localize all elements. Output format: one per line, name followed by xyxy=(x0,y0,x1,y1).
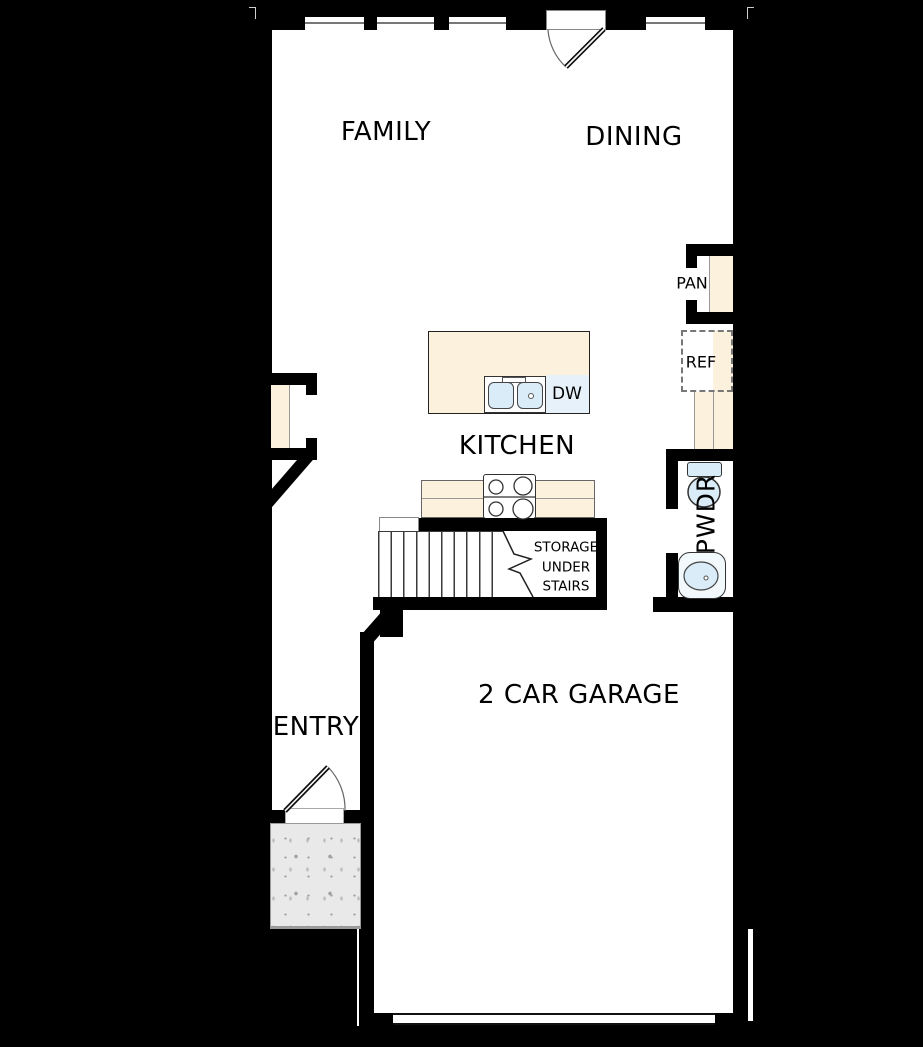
powder-room-label: PWDR xyxy=(692,474,721,554)
stair-break-line xyxy=(503,531,533,597)
family-room-label: FAMILY xyxy=(341,117,431,147)
storage-note-line2: UNDER xyxy=(534,558,598,578)
garage-step-diagonal xyxy=(366,606,396,640)
dishwasher-label: DW xyxy=(552,384,582,404)
kitchen-label: KITCHEN xyxy=(459,431,575,461)
floor-plan: FAMILY DINING KITCHEN ENTRY 2 CAR GARAGE… xyxy=(0,0,923,1047)
stove-burner xyxy=(513,499,533,519)
plan-overlay xyxy=(0,0,923,1047)
refrigerator-label: REF xyxy=(686,353,716,372)
powder-sink-basin xyxy=(684,562,718,590)
entry-door-leaf-inner xyxy=(285,767,328,811)
front-door-arc xyxy=(548,30,566,67)
garage-label: 2 CAR GARAGE xyxy=(478,680,680,710)
storage-note-line3: STAIRS xyxy=(534,578,598,598)
stove-burner xyxy=(514,477,532,495)
entry-label: ENTRY xyxy=(273,712,360,742)
storage-under-stairs-note: STORAGE UNDER STAIRS xyxy=(534,539,598,598)
powder-sink-drain xyxy=(704,576,708,580)
storage-note-line1: STORAGE xyxy=(534,539,598,559)
pantry-label: PAN xyxy=(676,274,708,293)
entry-door-arc xyxy=(328,767,345,811)
diagonal-wall xyxy=(265,453,311,506)
stove-burner xyxy=(489,480,503,494)
dining-room-label: DINING xyxy=(585,122,682,152)
stove-burner xyxy=(489,502,503,516)
front-door-leaf-inner xyxy=(566,29,604,67)
